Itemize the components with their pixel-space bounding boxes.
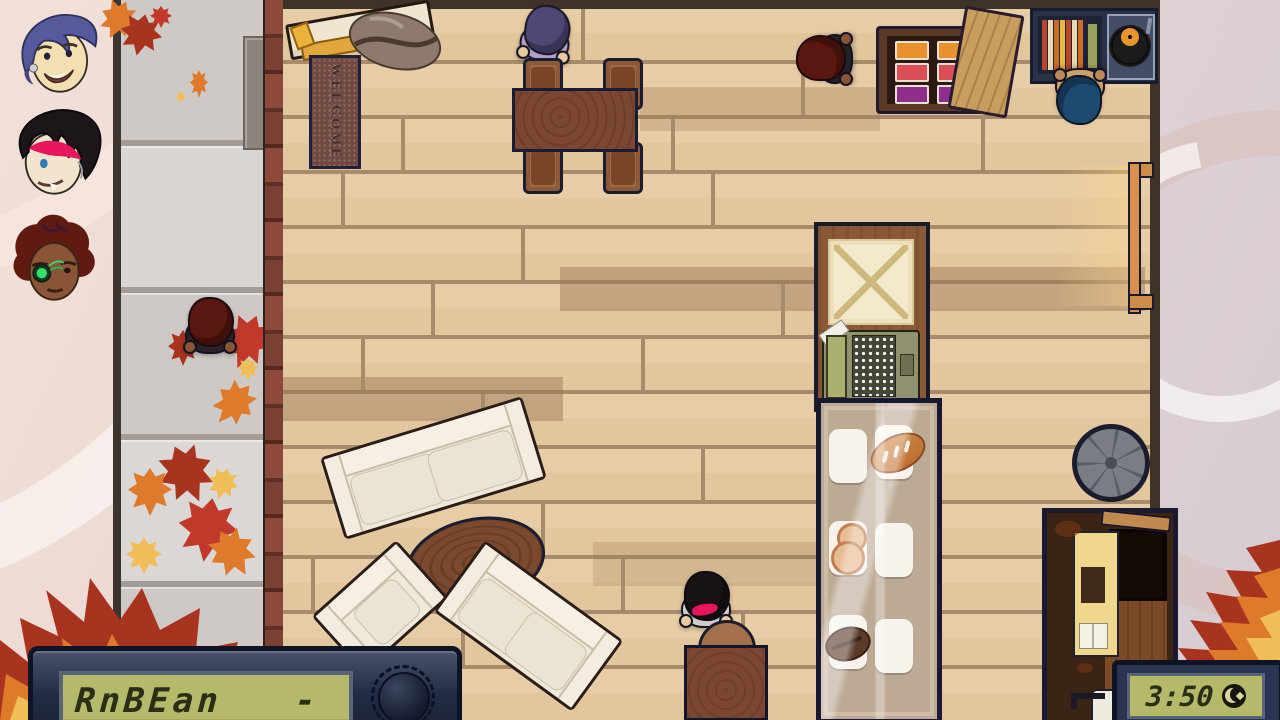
vinyl-spine: [1072, 20, 1077, 70]
bread-plate[interactable]: [875, 425, 913, 479]
vinyl-spine: [1042, 20, 1047, 70]
portrait-red-afro[interactable]: [4, 210, 108, 310]
bun: [831, 541, 865, 575]
register-desk[interactable]: [814, 222, 930, 412]
radio-station-text: RnBEan -: [62, 681, 322, 720]
character-hair: [188, 297, 234, 347]
customer-queue: [0, 0, 115, 320]
sidewalk-panel: [121, 143, 263, 290]
vinyl-spine: [1054, 20, 1059, 70]
ornate-desk-mat: [828, 239, 914, 325]
rust-stain: [1077, 663, 1093, 673]
green-book: [1088, 24, 1097, 68]
floor-fan[interactable]: [1072, 424, 1150, 502]
customer-red-afro-walking[interactable]: [182, 294, 238, 356]
small-square-table[interactable]: [684, 645, 768, 720]
radio-screen: RnBEan -: [59, 671, 353, 720]
door-frame-bar: [1128, 162, 1141, 314]
empty-plate[interactable]: [875, 619, 913, 673]
crescent-coin-icon: [1222, 684, 1246, 708]
pastry-tile: [895, 85, 929, 104]
cabinet-panel: [1081, 567, 1105, 603]
rust-stain: [1055, 521, 1081, 537]
register-typewriter[interactable]: [822, 330, 920, 404]
sidewalk-joint: [121, 140, 263, 146]
sidewalk-joint: [121, 434, 263, 440]
bean-pastry-plate[interactable]: [829, 615, 867, 669]
typewriter-lever: [900, 354, 914, 376]
game-viewport: WELCOME: [0, 0, 1280, 720]
vinyl-spine: [1078, 20, 1083, 70]
dining-table[interactable]: [512, 88, 638, 152]
typewriter-keys: [852, 335, 896, 397]
pastry-tile: [895, 41, 929, 60]
timer-screen: 3:50: [1127, 673, 1265, 719]
shift-timer: 3:50: [1112, 660, 1280, 720]
character-hair: [1056, 75, 1102, 125]
ledger-book: [826, 335, 847, 399]
pastry-tile: [895, 63, 929, 82]
customer-red-afro[interactable]: [793, 31, 855, 87]
vinyl-spine: [1060, 20, 1065, 70]
welcome-mat-text: WELCOME: [327, 63, 343, 160]
bakery-display-case[interactable]: [816, 398, 942, 720]
empty-plate[interactable]: [875, 523, 913, 577]
character-hair: [796, 35, 846, 81]
vinyl-hole: [1128, 35, 1132, 39]
radio: RnBEan -: [28, 646, 462, 720]
vinyl-spine: [1066, 20, 1071, 70]
portrait-pink-streak[interactable]: [6, 104, 110, 204]
faucet: [1071, 693, 1105, 699]
turntable[interactable]: [1107, 14, 1155, 80]
yellow-cabinet[interactable]: [1073, 531, 1119, 657]
cafe-room: WELCOME: [283, 0, 1160, 720]
sidewalk-joint: [121, 287, 263, 293]
vinyl-spine: [1048, 20, 1053, 70]
empty-plate[interactable]: [829, 429, 867, 483]
door-frame-bottom: [1128, 294, 1154, 310]
timer-text: 3:50: [1145, 680, 1215, 713]
side-door[interactable]: [1128, 162, 1154, 310]
buns-plate[interactable]: [829, 521, 867, 575]
customer-blue-hair[interactable]: [1052, 66, 1108, 128]
door-light: [1053, 166, 1131, 306]
character-hand: [839, 72, 853, 86]
welcome-mat: WELCOME: [309, 55, 361, 169]
cabinet-doors: [1079, 623, 1108, 649]
tonearm: [1146, 18, 1153, 34]
chocolate-bean-pastry: [821, 622, 874, 667]
radio-tuner-knob[interactable]: [378, 672, 430, 720]
portrait-purple-hair[interactable]: [8, 6, 108, 101]
